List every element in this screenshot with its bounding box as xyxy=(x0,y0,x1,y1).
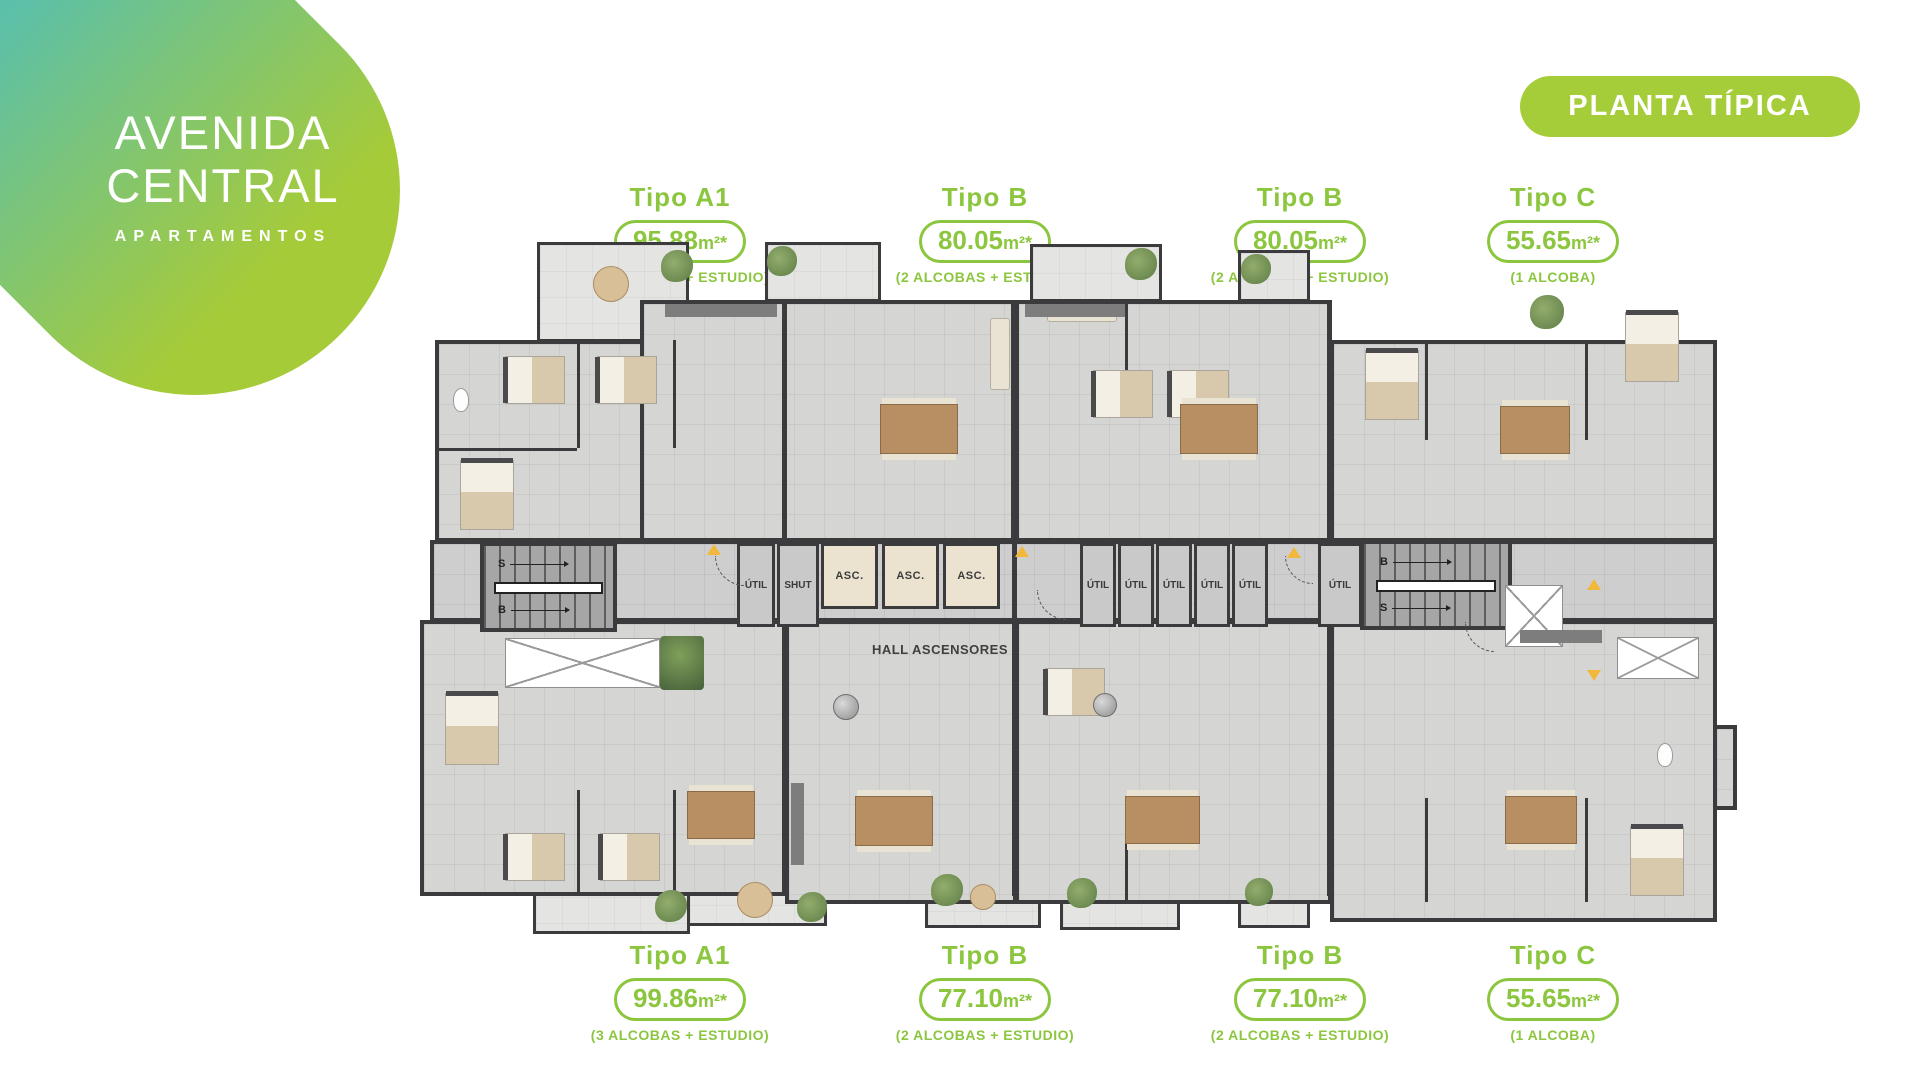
stair-up-label: S xyxy=(498,558,505,570)
toilet xyxy=(1657,743,1673,767)
washer xyxy=(833,694,859,720)
brand-name-line1: AVENIDA xyxy=(92,106,354,159)
planter xyxy=(660,636,704,690)
stair-arrow-icon xyxy=(1393,562,1451,563)
elevator-shaft-3: ASC. xyxy=(943,543,1000,609)
wall xyxy=(1327,622,1332,896)
stair-landing xyxy=(494,582,602,593)
area-unit: m²* xyxy=(1318,991,1347,1011)
area-badge: 99.86m²* xyxy=(614,978,746,1021)
plant xyxy=(661,250,693,282)
wall xyxy=(1012,300,1017,622)
marker-up-icon xyxy=(1015,546,1029,557)
bed xyxy=(505,833,565,881)
apartment-bottom-b1 xyxy=(785,620,1017,904)
unit-type-name: Tipo C xyxy=(1403,182,1703,213)
area-value: 77.10 xyxy=(1253,983,1318,1013)
elevator-label: ASC. xyxy=(835,570,863,582)
stair-down-label: B xyxy=(1380,556,1388,568)
void-shaft xyxy=(1617,637,1699,679)
area-unit: m²* xyxy=(698,991,727,1011)
plant xyxy=(1245,878,1273,906)
marker-up-icon xyxy=(707,544,721,555)
bed xyxy=(460,460,514,530)
wall xyxy=(1012,622,1017,896)
util-room: ÚTIL xyxy=(1232,543,1268,627)
bed xyxy=(1365,350,1419,420)
planta-tipica-badge[interactable]: PLANTA TÍPICA xyxy=(1520,76,1860,137)
stair-arrow-icon xyxy=(511,610,569,611)
kitchen-counter xyxy=(1025,304,1125,317)
wall xyxy=(782,622,787,896)
stair-up-label: S xyxy=(1380,602,1387,614)
wall xyxy=(1425,340,1428,440)
dining-table xyxy=(687,791,755,839)
plant xyxy=(1530,295,1564,329)
round-table xyxy=(970,884,996,910)
plant xyxy=(1125,248,1157,280)
shut-room: SHUT xyxy=(777,543,819,627)
bed xyxy=(600,833,660,881)
round-table xyxy=(737,882,773,918)
area-value: 99.86 xyxy=(633,983,698,1013)
util-label: ÚTIL xyxy=(1329,580,1351,591)
bed xyxy=(1630,826,1684,896)
brand-logo: AVENIDA CENTRAL APARTAMENTOS xyxy=(92,106,354,246)
stair-arrow-icon xyxy=(1392,608,1450,609)
plant xyxy=(655,890,687,922)
wall xyxy=(1585,340,1588,440)
area-unit: m²* xyxy=(1003,991,1032,1011)
unit-type-detail: (1 ALCOBA) xyxy=(1403,1027,1703,1043)
dining-table xyxy=(1180,404,1258,454)
stair-down-label: B xyxy=(498,604,506,616)
shut-label: SHUT xyxy=(784,580,811,591)
dining-table xyxy=(1500,406,1570,454)
washer xyxy=(1093,693,1117,717)
area-badge: 77.10m²* xyxy=(919,978,1051,1021)
void-shaft xyxy=(505,638,660,688)
dining-table xyxy=(1125,796,1200,844)
wall xyxy=(1585,798,1588,902)
util-room: ÚTIL xyxy=(1318,543,1362,627)
plant xyxy=(931,874,963,906)
unit-type-detail: (2 ALCOBAS + ESTUDIO) xyxy=(835,1027,1135,1043)
wall xyxy=(1425,798,1428,902)
apartment-top-b1 xyxy=(640,300,1015,542)
area-value: 55.65 xyxy=(1506,983,1571,1013)
elevator-label: ASC. xyxy=(957,570,985,582)
plant xyxy=(767,246,797,276)
brand-tagline: APARTAMENTOS xyxy=(92,228,354,246)
wall xyxy=(435,448,577,451)
wall xyxy=(577,790,580,896)
stair-direction-up: S xyxy=(498,558,568,570)
util-room: ÚTIL xyxy=(1194,543,1230,627)
round-table xyxy=(593,266,629,302)
marker-up-icon xyxy=(1587,579,1601,590)
plant xyxy=(1241,254,1271,284)
apartment-bottom-b2 xyxy=(1015,620,1332,904)
dining-table xyxy=(880,404,958,454)
util-room: ÚTIL xyxy=(1156,543,1192,627)
sofa xyxy=(990,318,1010,390)
stair-direction-down: B xyxy=(498,604,569,616)
toilet xyxy=(453,388,469,412)
stair-direction-down: B xyxy=(1380,556,1451,568)
unit-type-label-bottom-c: Tipo C 55.65m²* (1 ALCOBA) xyxy=(1403,940,1703,1043)
unit-type-detail: (3 ALCOBAS + ESTUDIO) xyxy=(530,1027,830,1043)
bed xyxy=(505,356,565,404)
kitchen-counter xyxy=(665,304,777,317)
util-label: ÚTIL xyxy=(1239,580,1261,591)
area-value: 77.10 xyxy=(938,983,1003,1013)
wall xyxy=(577,340,580,448)
staircase-left: S B xyxy=(480,542,617,632)
area-unit: m²* xyxy=(1571,991,1600,1011)
elevator-shaft-2: ASC. xyxy=(882,543,939,609)
staircase-right: B S xyxy=(1360,540,1512,630)
util-label: ÚTIL xyxy=(1087,580,1109,591)
stair-arrow-icon xyxy=(510,564,568,565)
bed xyxy=(445,693,499,765)
hall-label: HALL ASCENSORES xyxy=(850,642,1030,657)
unit-type-name: Tipo A1 xyxy=(530,182,830,213)
unit-type-name: Tipo B xyxy=(835,182,1135,213)
bed xyxy=(1625,312,1679,382)
apartment-top-b2 xyxy=(1015,300,1332,542)
util-label: ÚTIL xyxy=(1163,580,1185,591)
util-label: ÚTIL xyxy=(745,580,767,591)
wall xyxy=(673,790,676,896)
util-room: ÚTIL xyxy=(1118,543,1154,627)
elevator-shaft-1: ASC. xyxy=(821,543,878,609)
stair-direction-up: S xyxy=(1380,602,1450,614)
unit-type-label-bottom-a1: Tipo A1 99.86m²* (3 ALCOBAS + ESTUDIO) xyxy=(530,940,830,1043)
unit-type-label-bottom-b1: Tipo B 77.10m²* (2 ALCOBAS + ESTUDIO) xyxy=(835,940,1135,1043)
bed xyxy=(597,356,657,404)
floor-plan: ASC. ASC. ASC. ÚTIL SHUT ÚTIL ÚTIL ÚTIL … xyxy=(425,238,1780,953)
kitchen-counter xyxy=(1520,630,1602,643)
elevator-label: ASC. xyxy=(896,570,924,582)
util-label: ÚTIL xyxy=(1201,580,1223,591)
util-room: ÚTIL xyxy=(1080,543,1116,627)
building-bump xyxy=(1713,725,1737,810)
plant xyxy=(797,892,827,922)
brand-name-line2: CENTRAL xyxy=(92,159,354,212)
wall xyxy=(673,340,676,448)
dining-table xyxy=(855,796,933,846)
bed xyxy=(1093,370,1153,418)
util-label: ÚTIL xyxy=(1125,580,1147,591)
dining-table xyxy=(1505,796,1577,844)
kitchen-counter xyxy=(791,783,804,865)
area-badge: 55.65m²* xyxy=(1487,978,1619,1021)
area-badge: 77.10m²* xyxy=(1234,978,1366,1021)
marker-down-icon xyxy=(1587,670,1601,681)
plant xyxy=(1067,878,1097,908)
stair-landing xyxy=(1376,580,1497,591)
